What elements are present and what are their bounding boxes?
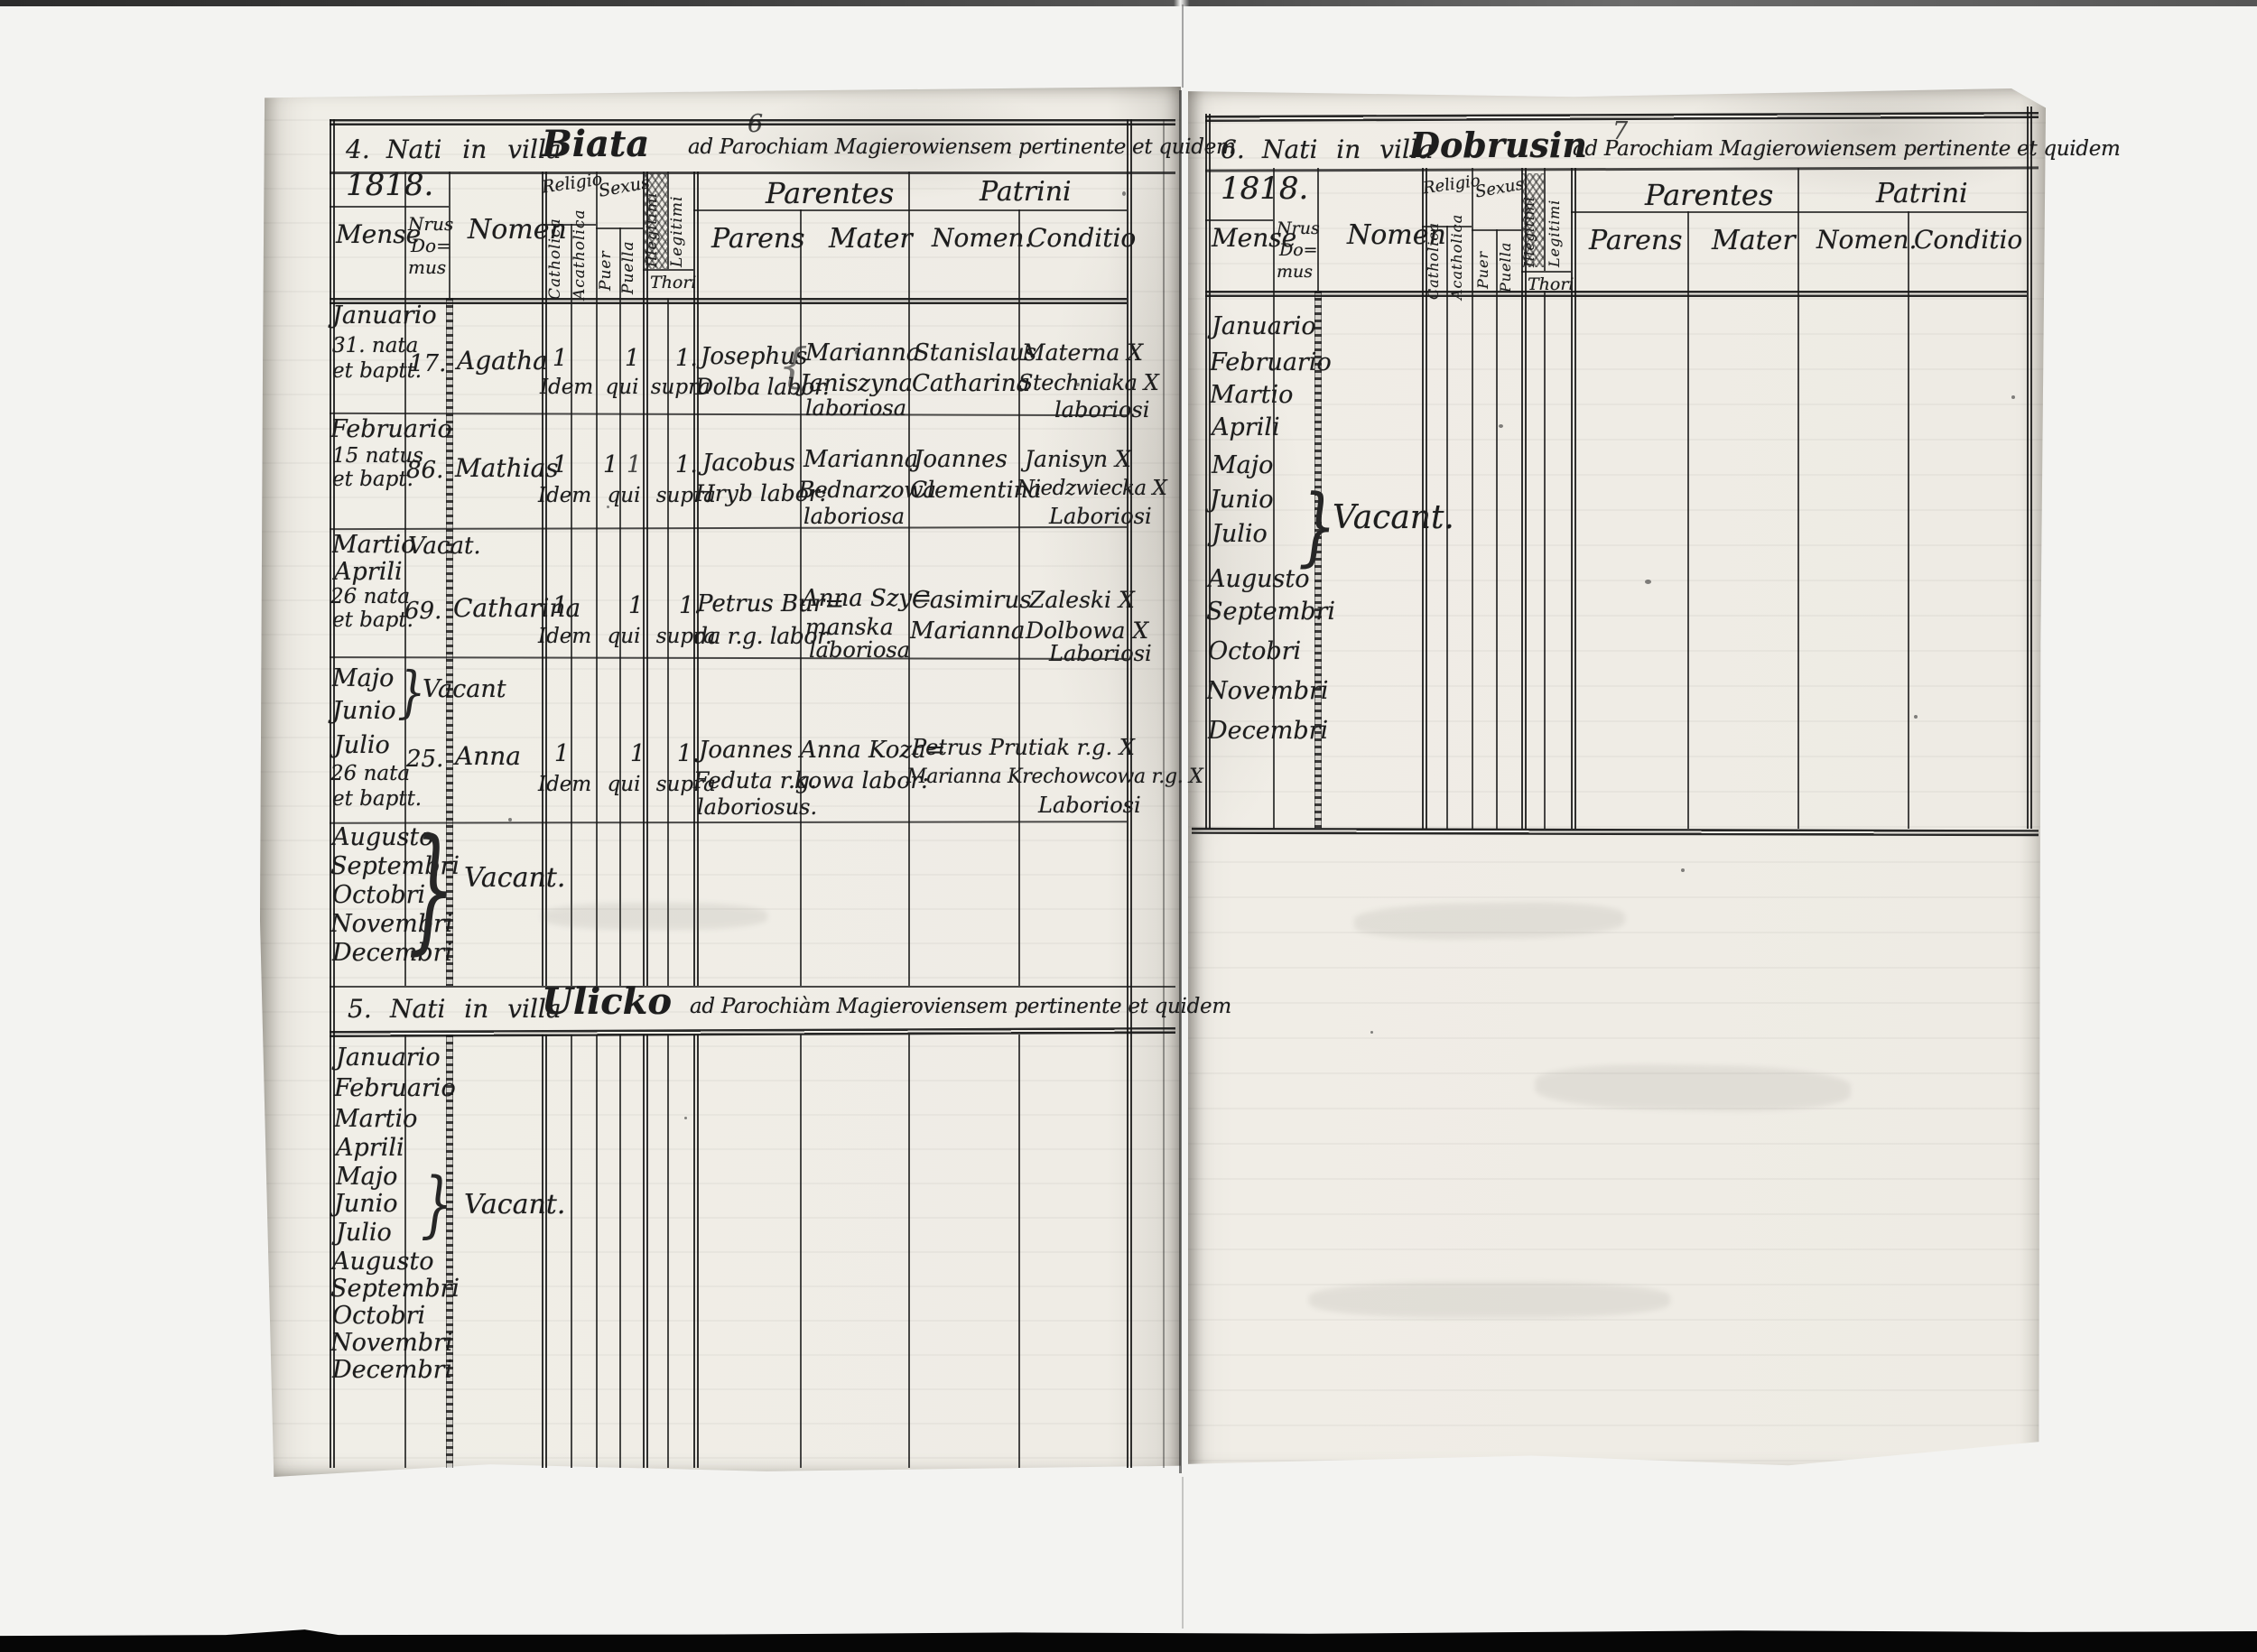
month-label: Majo: [336, 1165, 397, 1189]
column-line: [693, 172, 699, 986]
margin-line: [1163, 119, 1165, 1468]
group-header-line: [693, 209, 1127, 211]
column-line: [596, 1035, 598, 1468]
title-villa-phrase: Nati in villa: [1262, 137, 1434, 162]
tally-mark: 1.: [675, 453, 698, 477]
column-line: [1571, 168, 1576, 829]
idem-note: Idem qui supra: [538, 486, 716, 506]
col-header-domus: Do=: [1279, 242, 1318, 259]
col-header-nrus: Nrus: [1277, 220, 1320, 237]
col-header-year: 1818.: [1221, 173, 1308, 204]
tally-mark: 1: [553, 453, 568, 477]
month-label: Julio: [336, 1220, 392, 1245]
mother-entry-line: laboriosa: [805, 397, 906, 419]
column-line: [619, 227, 621, 986]
house-number: 17.: [409, 352, 446, 376]
col-header-patrini-nomen: Nomen.: [1816, 227, 1917, 253]
col-header-puer: Puer: [1476, 218, 1491, 289]
godparent-condition-line: Laboriosi: [1038, 794, 1141, 816]
month-label: Novembri: [330, 1331, 453, 1355]
month-label: Aprili: [336, 1136, 404, 1160]
house-number: 69.: [404, 599, 441, 623]
col-header-conditio: Conditio: [1914, 227, 2022, 253]
month-label: Februario: [1210, 350, 1332, 375]
col-header-catholica: Catholica: [1426, 209, 1441, 300]
mother-entry-line: manska: [805, 616, 894, 638]
godparent-name-line: Casimirus: [912, 589, 1032, 612]
baptism-note: et baptt.: [332, 789, 422, 810]
column-line: [1496, 229, 1498, 829]
month-label: Majo: [1212, 453, 1273, 478]
godparent-condition-line: Materna X: [1022, 341, 1143, 364]
column-line: [693, 1035, 699, 1468]
mense-entry: Februario: [330, 417, 452, 441]
tally-mark: 1.: [677, 742, 700, 766]
col-header-illegitimi: Illegitimi: [1523, 179, 1537, 267]
col-header-domus: mus: [1277, 264, 1313, 281]
month-label: Augusto: [332, 1249, 434, 1274]
month-label: Martio: [334, 1107, 417, 1131]
column-line: [1018, 1035, 1020, 1468]
ink-speck: [1681, 868, 1685, 872]
column-line: [542, 1035, 547, 1468]
tally-mark: 1: [627, 453, 642, 477]
title-villa-phrase: Nati in villa: [386, 137, 562, 162]
vacant-note: Vacant.: [464, 865, 565, 892]
col-header-parentes: Parentes: [766, 179, 894, 208]
month-label: Augusto: [1208, 567, 1310, 591]
thori-box-line: [1521, 271, 1571, 273]
table-bottom-line: [330, 986, 1175, 988]
vacant-note: Vacant.: [1333, 502, 1454, 534]
mense-entry: Aprili: [334, 560, 403, 584]
ink-speck: [1645, 580, 1651, 584]
title-parish-phrase: ad Parochiam Magierowiensem pertinente e…: [688, 137, 1236, 158]
month-label: Junio: [1210, 487, 1274, 512]
birth-date-note: 31. nata: [332, 336, 418, 357]
section-number: 5.: [348, 997, 372, 1022]
month-label: Aprili: [1212, 415, 1280, 440]
tally-mark: 1: [628, 594, 644, 617]
column-line: [1472, 168, 1473, 829]
godparent-name-line: Catharina: [912, 372, 1030, 395]
mother-entry-line: laboriosa: [809, 639, 910, 661]
title-parish-phrase: ad Parochiam Magierowiensem pertinente e…: [1573, 139, 2121, 160]
mense-entry: Majo: [332, 666, 394, 691]
col-header-parens: Parens: [1589, 227, 1683, 255]
birth-date-note: 26 nata: [330, 764, 410, 784]
ink-speck: [1370, 1031, 1373, 1034]
godparent-condition-line: Laboriosi: [1049, 643, 1152, 664]
baptism-note: et bapt.: [332, 610, 413, 631]
col-header-thori: Thori: [650, 274, 697, 292]
godparent-condition-line: Niedzwiecka X: [1017, 478, 1166, 499]
column-line: [2027, 107, 2032, 829]
child-name: Agatha: [457, 348, 548, 374]
idem-note: Idem qui supra: [538, 775, 716, 795]
column-line: [908, 172, 910, 986]
month-label: Novembri: [1206, 679, 1329, 703]
month-label: Septembri: [330, 1276, 460, 1301]
column-line: [908, 1035, 910, 1468]
mother-entry-line: laboriosa: [803, 506, 905, 527]
mense-entry: Martio: [332, 533, 415, 557]
mense-entry: Januario: [332, 303, 437, 328]
header-bottom-border: [1205, 291, 2027, 297]
scan-top-edge-strip: [0, 0, 2257, 6]
father-entry-line: Joannes: [699, 738, 793, 762]
column-line: [643, 172, 648, 986]
col-header-thori: Thori: [1528, 276, 1574, 293]
child-name: Mathias: [455, 456, 559, 481]
vacant-note: Vacat.: [408, 534, 481, 558]
table-top-border: [330, 119, 1175, 125]
col-header-catholica: Catholica: [548, 206, 563, 300]
tally-mark: 1: [625, 347, 640, 370]
col-header-acatholica: Acatholica: [1450, 213, 1464, 300]
col-header-acatholica: Acatholica: [572, 209, 588, 300]
father-entry-line: Jacobus: [702, 451, 795, 475]
tally-mark: 1: [630, 742, 646, 766]
ink-speck: [684, 1117, 687, 1119]
month-label: Septembri: [1206, 599, 1335, 624]
month-label: Julio: [1212, 522, 1268, 546]
title-villa-name: Dobrusin: [1410, 128, 1587, 162]
col-header-mater: Mater: [1712, 227, 1796, 255]
tally-mark: 1: [554, 742, 570, 766]
year-cell-line: [330, 206, 449, 208]
col-header-puella: Puella: [1499, 213, 1513, 292]
col-header-conditio: Conditio: [1027, 226, 1136, 251]
col-header-year: 1818.: [346, 170, 433, 200]
ink-speck: [1499, 424, 1503, 428]
birth-date-note: 26 nata: [330, 587, 410, 608]
godparent-condition-line: Stechniaka X: [1018, 372, 1158, 394]
ink-speck: [855, 350, 859, 355]
col-header-nrus: Nrus: [408, 215, 453, 233]
baptism-note: et bapt.: [332, 469, 413, 490]
col-header-puer: Puer: [599, 217, 614, 291]
section-number: 6.: [1221, 137, 1245, 162]
vacant-note: Vacant.: [464, 1192, 565, 1219]
col-header-parentes: Parentes: [1645, 181, 1773, 209]
idem-note: Idem qui supra: [538, 626, 716, 647]
ink-speck: [1914, 715, 1918, 719]
bleed-through-smudge: [542, 903, 767, 930]
title-villa-name: Biata: [542, 126, 649, 162]
month-label: Junio: [334, 1192, 398, 1216]
ink-speck: [1076, 383, 1080, 386]
col-header-legitimi: Legitimi: [670, 173, 685, 267]
book-fold-line-bottom: [1182, 1477, 1184, 1629]
col-header-domus: mus: [408, 258, 446, 276]
month-label: Januario: [336, 1045, 441, 1070]
tally-mark: 1: [553, 594, 568, 617]
child-name: Anna: [455, 744, 521, 769]
column-line: [800, 1035, 802, 1468]
godparent-condition-line: Laboriosi: [1049, 506, 1152, 527]
tally-mark: 1.: [675, 347, 698, 370]
column-line: [619, 1035, 621, 1468]
column-line: [1544, 291, 1546, 829]
col-header-mater: Mater: [829, 226, 913, 253]
column-line: [1687, 211, 1689, 829]
month-label: Octobri: [332, 1304, 425, 1328]
title-villa-name: Ulicko: [542, 984, 672, 1020]
month-label: Februario: [334, 1076, 456, 1100]
col-header-patrini: Patrini: [980, 179, 1072, 206]
scan-bottom-black-bar: [0, 1628, 2257, 1652]
column-line: [1908, 211, 1909, 829]
ink-speck: [508, 818, 512, 821]
godparent-name-line: Petrus Prutiak r.g. X: [912, 737, 1135, 758]
col-header-patrini: Patrini: [1876, 181, 1968, 208]
godparent-name-line: Joannes: [914, 448, 1008, 471]
column-line: [643, 1035, 648, 1468]
month-label: Martio: [1210, 383, 1293, 407]
book-fold-line-top: [1182, 5, 1184, 88]
father-entry-line: laboriosus.: [697, 796, 817, 818]
column-line: [571, 1035, 572, 1468]
month-label: Octobri: [1208, 639, 1301, 664]
thori-box-line: [643, 269, 693, 271]
month-label: Decembri: [1208, 719, 1328, 743]
title-underline: [330, 172, 1175, 174]
mother-entry-line: Janiszyna: [800, 372, 913, 395]
title-villa-phrase: Nati in villa: [390, 997, 562, 1022]
idem-note: Idem qui supra: [540, 377, 711, 398]
col-header-patrini-nomen: Nomen.: [932, 226, 1032, 251]
section-number: 4.: [346, 137, 370, 162]
godparent-name-line: Stanislaus: [914, 341, 1036, 365]
year-cell-line: [1205, 219, 1273, 221]
ink-speck: [607, 506, 609, 508]
col-header-domus: Do=: [411, 237, 451, 255]
ink-speck: [2011, 395, 2015, 399]
month-label: Decembri: [332, 1358, 452, 1382]
godparent-condition-line: Dolbowa X: [1026, 619, 1148, 642]
column-line: [1797, 168, 1799, 829]
month-label: Januario: [1212, 314, 1316, 339]
title-parish-phrase: ad Parochiàm Magieroviensem pertinente e…: [690, 997, 1231, 1017]
column-line: [667, 1035, 669, 1468]
godparent-condition-line: laboriosi: [1054, 399, 1149, 421]
house-number: 25.: [406, 747, 443, 771]
bleed-through-smudge: [1309, 1282, 1670, 1318]
col-header-puella: Puella: [621, 211, 636, 294]
godparent-name-line: Marianna: [910, 619, 1025, 643]
tally-mark: 1: [603, 453, 618, 477]
scanned-register-spread: 6 7 4. Nati in villa Biata ad Parochiam …: [0, 0, 2257, 1652]
godparent-name-line: Marianna Krechowcowa r.g. X: [906, 767, 1203, 787]
vacant-note: Vacant: [423, 677, 506, 701]
ink-speck: [1122, 191, 1126, 196]
mense-entry: Julio: [334, 733, 390, 757]
col-header-parens: Parens: [711, 226, 805, 253]
mense-entry: Junio: [332, 699, 396, 723]
godparent-condition-line: Zaleski X: [1029, 589, 1135, 611]
godparent-condition-line: Janisyn X: [1025, 448, 1131, 470]
tally-mark: 1: [553, 347, 568, 370]
col-header-illegitimi: Illegitimi: [645, 177, 659, 267]
mother-entry-line: Marianna: [803, 448, 918, 471]
house-number: 86.: [406, 459, 443, 482]
mother-entry-line: Marianna: [805, 341, 920, 365]
column-line: [596, 172, 598, 986]
col-header-legitimi: Legitimi: [1547, 175, 1562, 267]
